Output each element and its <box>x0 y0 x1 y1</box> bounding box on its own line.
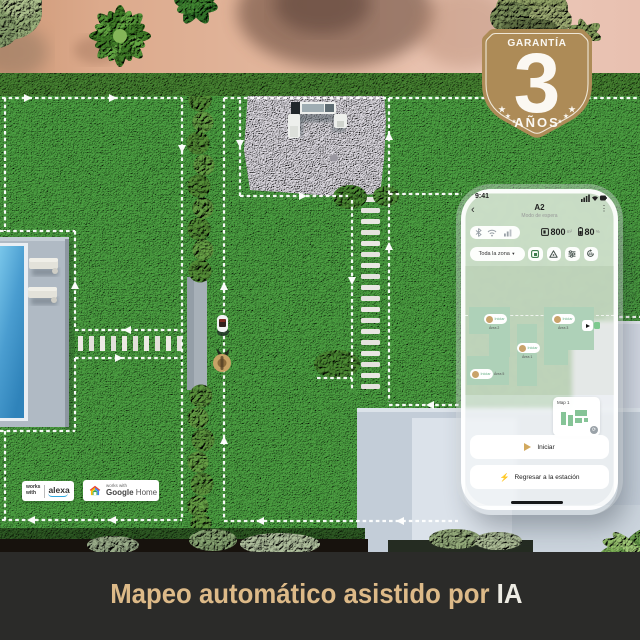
svg-text:45: 45 <box>589 252 593 256</box>
svg-text:★: ★ <box>498 105 506 114</box>
svg-text:★: ★ <box>568 105 576 114</box>
svg-text:★: ★ <box>563 113 569 120</box>
svg-text:AÑOS: AÑOS <box>514 115 560 130</box>
svg-text:★: ★ <box>558 119 563 125</box>
svg-text:★: ★ <box>505 113 511 120</box>
svg-text:★: ★ <box>512 119 517 125</box>
